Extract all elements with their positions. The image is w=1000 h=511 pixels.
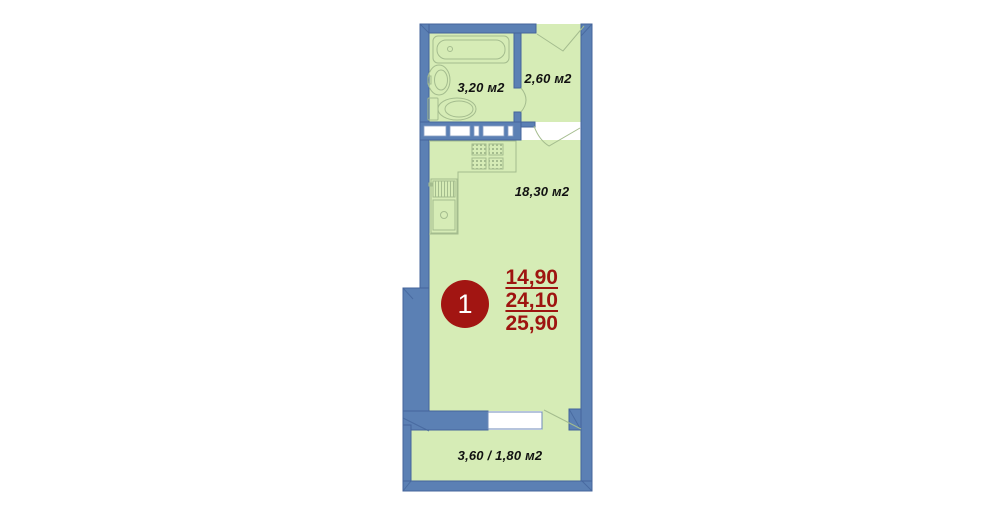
wall-balcony-bottom (403, 481, 592, 491)
total-area-value: 24,10 (470, 289, 558, 312)
wall-bathroom-hallway-lower (514, 112, 521, 123)
shaft-blocks (424, 126, 513, 136)
bathroom-floor (429, 33, 514, 122)
living-area-value: 14,90 (470, 266, 558, 289)
balcony-window (488, 412, 542, 429)
balcony-area-label: 3,60 / 1,80 м2 (420, 448, 580, 463)
floor-plan-drawing (0, 0, 1000, 511)
balcony-door-opening (542, 409, 569, 430)
living-room-area-label: 18,30 м2 (492, 184, 592, 199)
hallway-area-label: 2,60 м2 (508, 71, 588, 86)
wall-left-pilaster (403, 288, 429, 414)
entrance-opening (536, 24, 581, 33)
wall-left-upper (420, 24, 429, 288)
floor-plan-canvas: 3,20 м2 2,60 м2 18,30 м2 3,60 / 1,80 м2 … (0, 0, 1000, 511)
wall-hall-door-stub (521, 122, 535, 127)
area-summary: 14,90 24,10 25,90 (470, 266, 558, 335)
wall-top (420, 24, 536, 33)
total-with-balcony-value: 25,90 (470, 312, 558, 335)
wall-right (581, 24, 592, 491)
wall-room-bottom (403, 411, 488, 430)
